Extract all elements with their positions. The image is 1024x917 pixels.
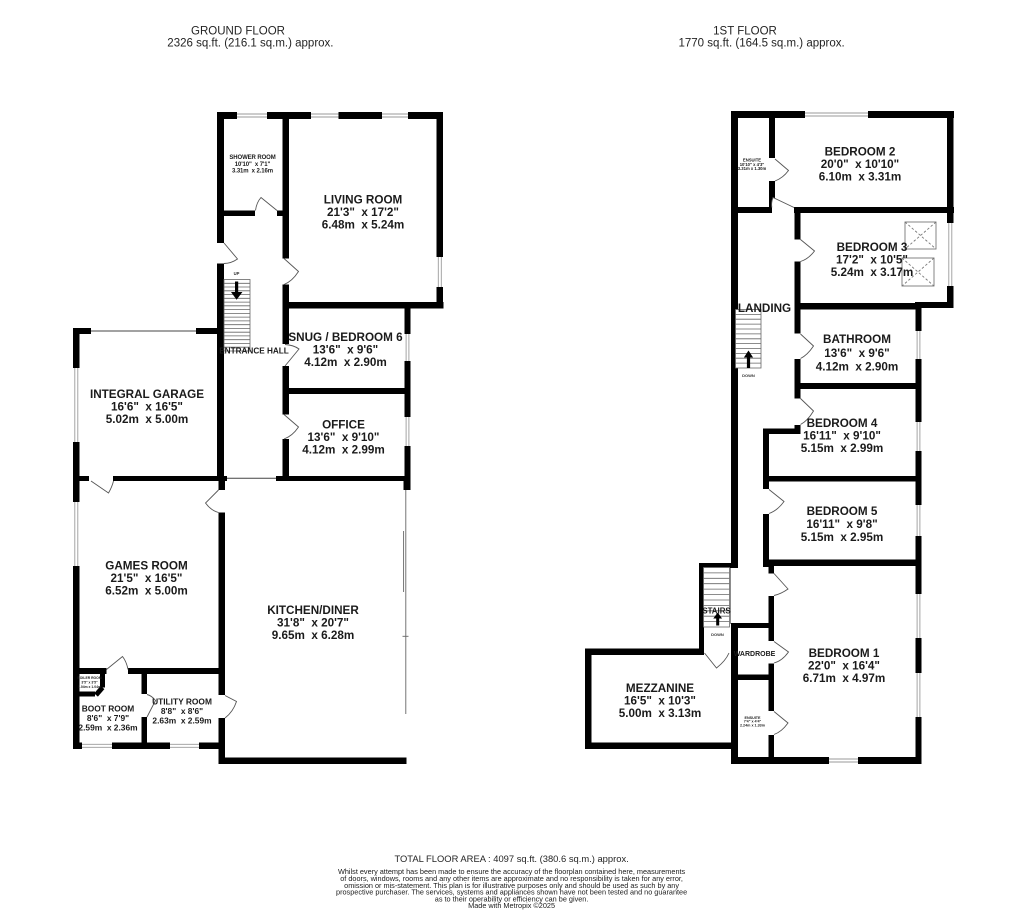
svg-text:5.02m x 5.00m: 5.02m x 5.00m [106,413,189,426]
svg-text:BEDROOM 2: BEDROOM 2 [825,146,896,159]
svg-text:6.48m x 5.24m: 6.48m x 5.24m [322,219,405,232]
svg-text:2.59m x 2.36m: 2.59m x 2.36m [78,722,137,732]
svg-text:16'5" x 10'3": 16'5" x 10'3" [624,695,696,708]
svg-text:5.00m x 3.13m: 5.00m x 3.13m [619,707,702,720]
svg-text:BATHROOM: BATHROOM [823,333,891,346]
svg-text:6.10m x 3.31m: 6.10m x 3.31m [819,171,902,184]
svg-text:1770 sq.ft. (164.5 sq.m.) appr: 1770 sq.ft. (164.5 sq.m.) approx. [678,38,844,50]
svg-text:6.71m x 4.97m: 6.71m x 4.97m [803,672,886,685]
svg-text:DOWN: DOWN [711,632,724,637]
svg-text:2.63m x 2.59m: 2.63m x 2.59m [152,715,211,725]
svg-text:2326 sq.ft. (216.1 sq.m.) appr: 2326 sq.ft. (216.1 sq.m.) approx. [167,38,333,50]
svg-text:BOOT ROOM: BOOT ROOM [82,703,135,713]
svg-text:10'10" x 7'1": 10'10" x 7'1" [235,162,271,168]
svg-text:1ST FLOOR: 1ST FLOOR [713,26,777,38]
svg-text:BEDROOM 5: BEDROOM 5 [807,505,878,518]
svg-text:5.15m x 2.99m: 5.15m x 2.99m [801,442,884,455]
svg-text:BEDROOM 1: BEDROOM 1 [809,647,880,660]
svg-text:MEZZANINE: MEZZANINE [626,682,694,695]
svg-text:LANDING: LANDING [738,302,791,315]
svg-text:16'11" x 9'10": 16'11" x 9'10" [803,430,881,443]
svg-text:LIVING ROOM: LIVING ROOM [324,194,403,207]
svg-text:4.12m x 2.99m: 4.12m x 2.99m [302,444,385,457]
svg-text:16'6" x 16'5": 16'6" x 16'5" [111,401,183,414]
svg-text:1.04m x 1.04m: 1.04m x 1.04m [78,685,101,689]
svg-text:BEDROOM 4: BEDROOM 4 [807,417,878,430]
svg-text:SNUG / BEDROOM 6: SNUG / BEDROOM 6 [288,331,403,344]
svg-text:3.31m x 1.30m: 3.31m x 1.30m [738,166,767,171]
svg-text:16'11" x 9'8": 16'11" x 9'8" [806,518,877,531]
svg-text:ENTRANCE HALL: ENTRANCE HALL [219,347,289,356]
svg-text:5.15m x 2.95m: 5.15m x 2.95m [801,531,884,544]
svg-text:13'6" x 9'6": 13'6" x 9'6" [313,344,378,357]
svg-text:3'5" x 3'5": 3'5" x 3'5" [81,680,98,684]
svg-text:8'8" x 8'6": 8'8" x 8'6" [161,706,203,716]
svg-text:STAIRS: STAIRS [702,606,730,615]
svg-text:21'3" x 17'2": 21'3" x 17'2" [327,206,399,219]
svg-text:UTILITY ROOM: UTILITY ROOM [152,696,212,706]
svg-text:2.24m x 1.33m: 2.24m x 1.33m [740,723,766,727]
svg-text:31'8" x 20'7": 31'8" x 20'7" [277,617,349,630]
svg-text:TOTAL FLOOR AREA : 4097 sq.ft.: TOTAL FLOOR AREA : 4097 sq.ft. (380.6 sq… [394,853,628,864]
svg-text:8'6" x 7'9": 8'6" x 7'9" [87,713,129,723]
svg-text:20'0" x 10'10": 20'0" x 10'10" [821,158,899,171]
svg-text:22'0" x 16'4": 22'0" x 16'4" [808,660,880,673]
svg-text:WARDROBE: WARDROBE [734,651,776,658]
svg-text:3.31m x 2.16m: 3.31m x 2.16m [232,168,273,174]
svg-text:BEDROOM 3: BEDROOM 3 [837,241,908,254]
svg-text:Made with Metropix ©2025: Made with Metropix ©2025 [468,901,555,910]
svg-text:GAMES ROOM: GAMES ROOM [105,560,187,573]
svg-text:DOWN: DOWN [742,373,755,378]
svg-text:6.52m x 5.00m: 6.52m x 5.00m [105,585,188,598]
svg-text:INTEGRAL GARAGE: INTEGRAL GARAGE [90,388,204,401]
svg-text:5.24m x 3.17m: 5.24m x 3.17m [831,266,914,279]
svg-text:SHOWER ROOM: SHOWER ROOM [229,155,275,161]
svg-text:BOILER ROOM: BOILER ROOM [77,676,101,680]
svg-text:21'5" x 16'5": 21'5" x 16'5" [111,572,183,585]
svg-text:GROUND FLOOR: GROUND FLOOR [191,26,285,38]
svg-text:OFFICE: OFFICE [322,419,365,432]
svg-text:UP: UP [234,271,240,276]
svg-text:13'6" x 9'10": 13'6" x 9'10" [308,431,380,444]
svg-text:4.12m x 2.90m: 4.12m x 2.90m [304,356,387,369]
svg-text:17'2" x 10'5": 17'2" x 10'5" [836,254,908,267]
svg-text:KITCHEN/DINER: KITCHEN/DINER [267,604,359,617]
svg-text:9.65m x 6.28m: 9.65m x 6.28m [272,629,355,642]
svg-text:4.12m x 2.90m: 4.12m x 2.90m [816,361,899,374]
svg-text:13'6" x 9'6": 13'6" x 9'6" [824,347,889,360]
